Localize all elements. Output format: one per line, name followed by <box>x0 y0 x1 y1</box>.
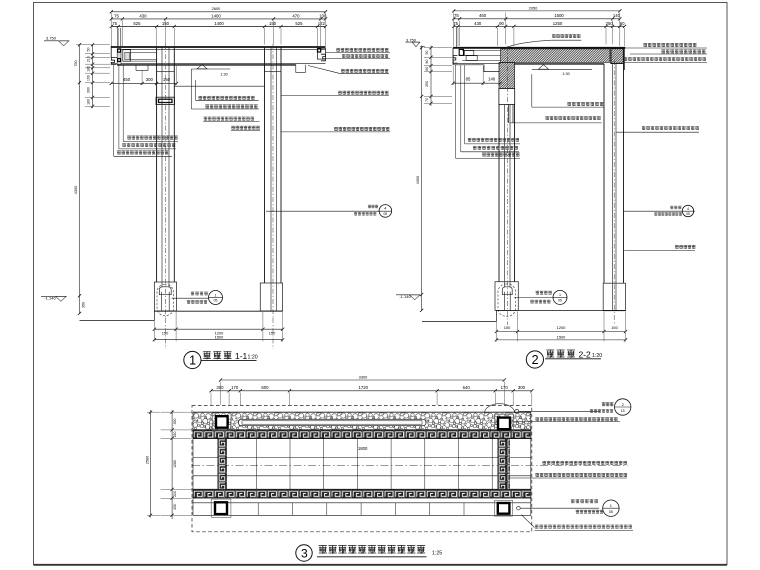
svg-text:1280: 1280 <box>173 460 177 468</box>
svg-text:210: 210 <box>87 56 91 62</box>
svg-text:640: 640 <box>463 385 471 390</box>
svg-text:90: 90 <box>499 21 504 26</box>
svg-text:1800: 1800 <box>358 446 368 451</box>
svg-text:4: 4 <box>384 207 386 211</box>
svg-text:525: 525 <box>133 21 141 26</box>
svg-text:1: 1 <box>215 293 217 297</box>
svg-text:60: 60 <box>425 67 429 71</box>
svg-text:70: 70 <box>425 98 429 102</box>
svg-text:150: 150 <box>269 330 276 335</box>
svg-text:300: 300 <box>87 87 91 93</box>
svg-text:1: 1 <box>189 354 196 368</box>
svg-text:1720: 1720 <box>359 385 369 390</box>
svg-text:2580: 2580 <box>145 456 149 464</box>
svg-text:100: 100 <box>319 13 327 18</box>
svg-text:450: 450 <box>123 77 131 82</box>
svg-text:1250: 1250 <box>553 21 563 26</box>
svg-text:250: 250 <box>425 81 429 87</box>
svg-text:2050: 2050 <box>529 5 538 10</box>
svg-text:4300: 4300 <box>74 186 78 194</box>
svg-text:470: 470 <box>292 13 300 18</box>
svg-text:3300: 3300 <box>359 374 368 379</box>
svg-text:05: 05 <box>609 510 613 514</box>
svg-text:450: 450 <box>173 419 177 425</box>
svg-text:600: 600 <box>261 385 269 390</box>
svg-text:2600: 2600 <box>212 6 221 11</box>
svg-text:85: 85 <box>466 77 471 82</box>
svg-text:3.750: 3.750 <box>406 37 417 42</box>
svg-text:1:25: 1:25 <box>432 551 442 557</box>
svg-text:4: 4 <box>687 207 689 211</box>
svg-text:1400: 1400 <box>214 21 224 26</box>
svg-text:80: 80 <box>425 60 429 64</box>
svg-text:170: 170 <box>231 385 239 390</box>
svg-text:140: 140 <box>488 77 496 82</box>
svg-text:750: 750 <box>74 60 78 66</box>
svg-text:1:20: 1:20 <box>592 353 602 359</box>
svg-text:220: 220 <box>173 432 177 438</box>
svg-text:75: 75 <box>114 13 119 18</box>
svg-text:1:30: 1:30 <box>220 73 227 77</box>
svg-text:3: 3 <box>301 547 308 561</box>
svg-text:430: 430 <box>474 21 482 26</box>
svg-text:60: 60 <box>620 21 625 26</box>
svg-text:1: 1 <box>559 293 561 297</box>
svg-text:50: 50 <box>87 48 91 52</box>
svg-text:430: 430 <box>139 13 147 18</box>
svg-text:4300: 4300 <box>416 176 420 184</box>
svg-text:75: 75 <box>454 13 459 18</box>
svg-text:1-1: 1-1 <box>235 351 248 361</box>
svg-text:05: 05 <box>686 212 690 216</box>
svg-text:140: 140 <box>613 13 621 18</box>
svg-text:15: 15 <box>621 409 625 413</box>
svg-text:1500: 1500 <box>215 334 224 339</box>
svg-text:05: 05 <box>558 298 562 302</box>
svg-text:250: 250 <box>606 21 614 26</box>
svg-text:300: 300 <box>146 77 154 82</box>
svg-text:50: 50 <box>425 51 429 55</box>
svg-text:1200: 1200 <box>557 325 566 330</box>
svg-text:3.750: 3.750 <box>46 36 57 41</box>
svg-text:350: 350 <box>82 302 86 308</box>
svg-text:1400: 1400 <box>211 13 221 18</box>
svg-text:150: 150 <box>504 325 511 330</box>
svg-text:1500: 1500 <box>557 334 566 339</box>
svg-text:75: 75 <box>112 21 117 26</box>
svg-text:1500: 1500 <box>554 13 564 18</box>
svg-text:05: 05 <box>383 212 387 216</box>
svg-text:190: 190 <box>87 75 91 81</box>
svg-text:150: 150 <box>269 21 277 26</box>
svg-text:430: 430 <box>173 504 177 510</box>
svg-text:150: 150 <box>163 77 171 82</box>
svg-text:180: 180 <box>87 99 91 105</box>
svg-text:300: 300 <box>518 385 526 390</box>
svg-text:180: 180 <box>87 66 91 72</box>
svg-text:2: 2 <box>532 353 539 367</box>
svg-text:122: 122 <box>318 21 326 26</box>
svg-text:525: 525 <box>295 21 303 26</box>
svg-text:05: 05 <box>214 299 218 303</box>
svg-text:150: 150 <box>611 325 618 330</box>
svg-text:1:20: 1:20 <box>248 354 258 360</box>
svg-text:1:30: 1:30 <box>562 72 569 76</box>
svg-text:2-2: 2-2 <box>579 349 592 359</box>
svg-text:75: 75 <box>453 21 458 26</box>
svg-text:460: 460 <box>479 13 487 18</box>
svg-text:220: 220 <box>173 491 177 497</box>
